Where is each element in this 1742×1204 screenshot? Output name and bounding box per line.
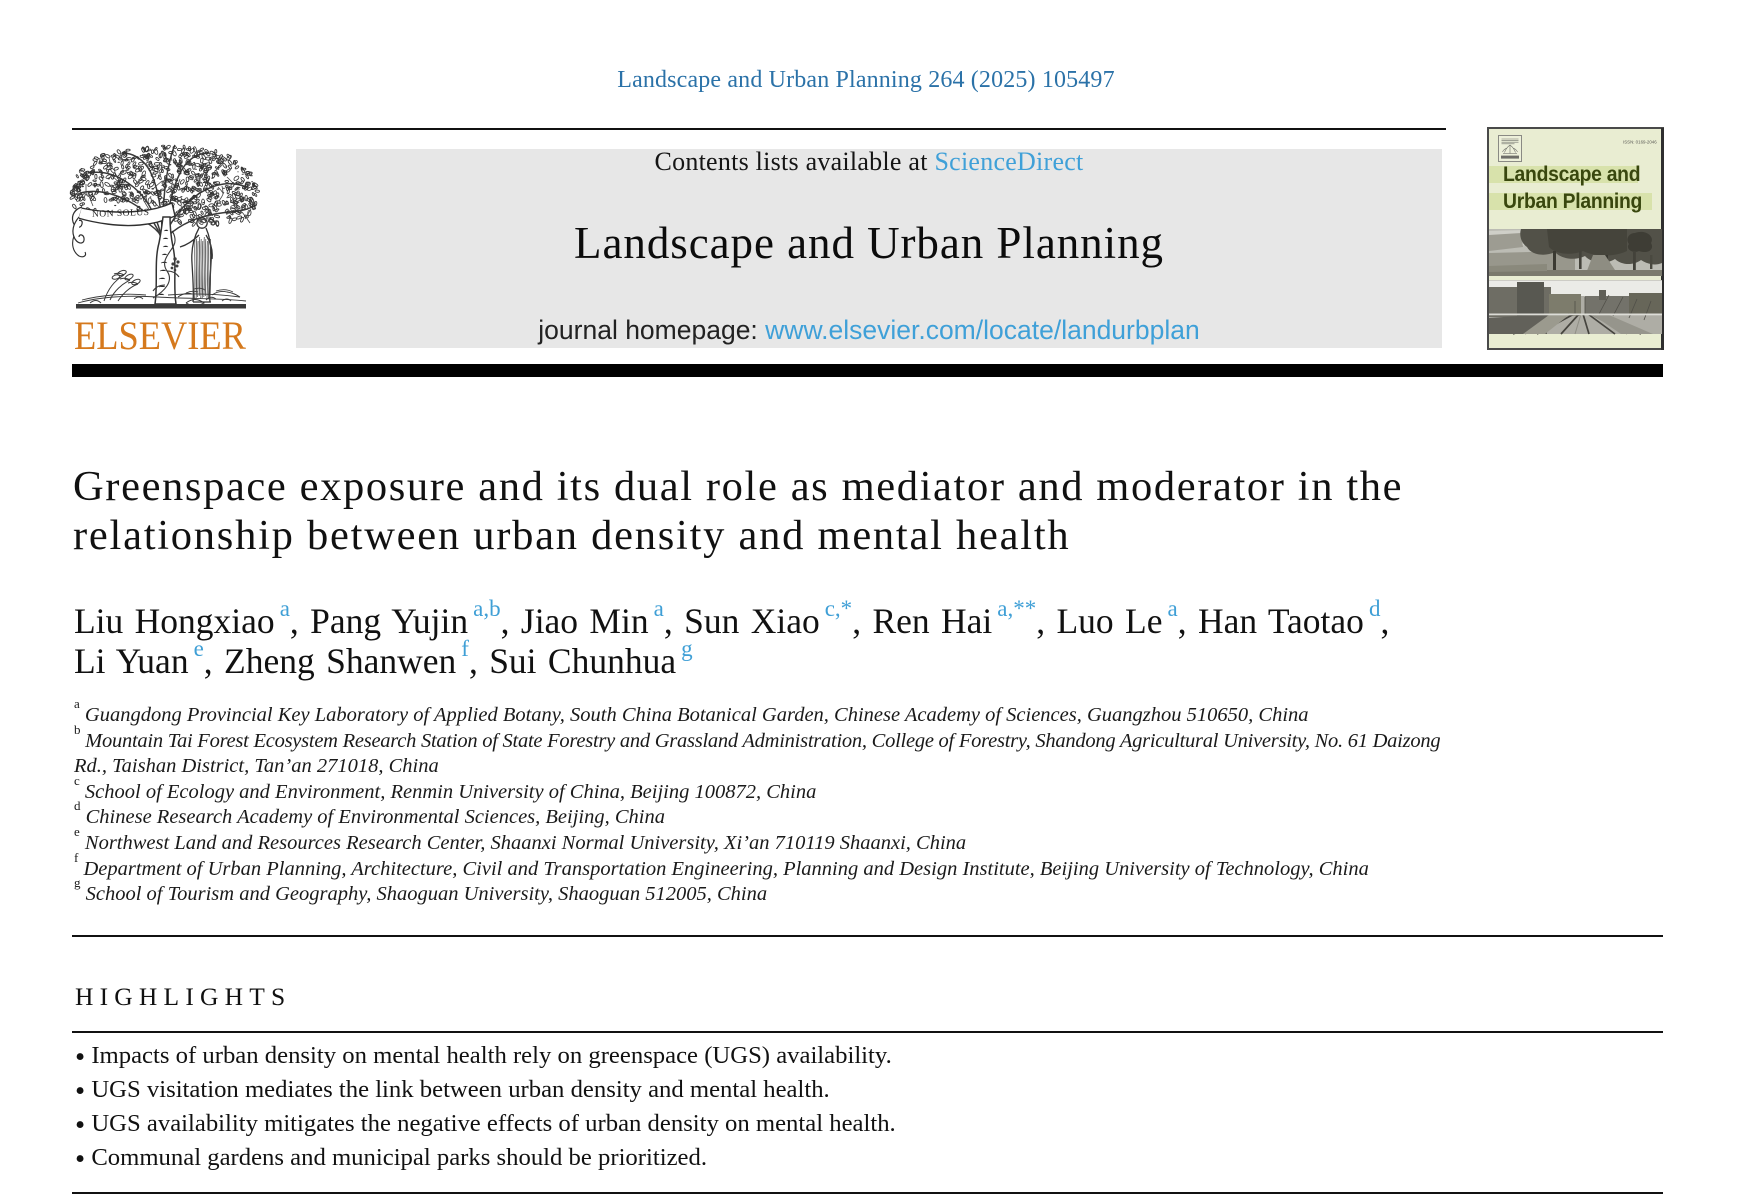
svg-text:Landscape and: Landscape and xyxy=(1503,162,1640,186)
svg-text:Urban Planning: Urban Planning xyxy=(1503,189,1642,213)
svg-text:NON SOLUS: NON SOLUS xyxy=(92,208,150,220)
svg-text:ISSN: 0169-2046: ISSN: 0169-2046 xyxy=(1623,140,1657,145)
